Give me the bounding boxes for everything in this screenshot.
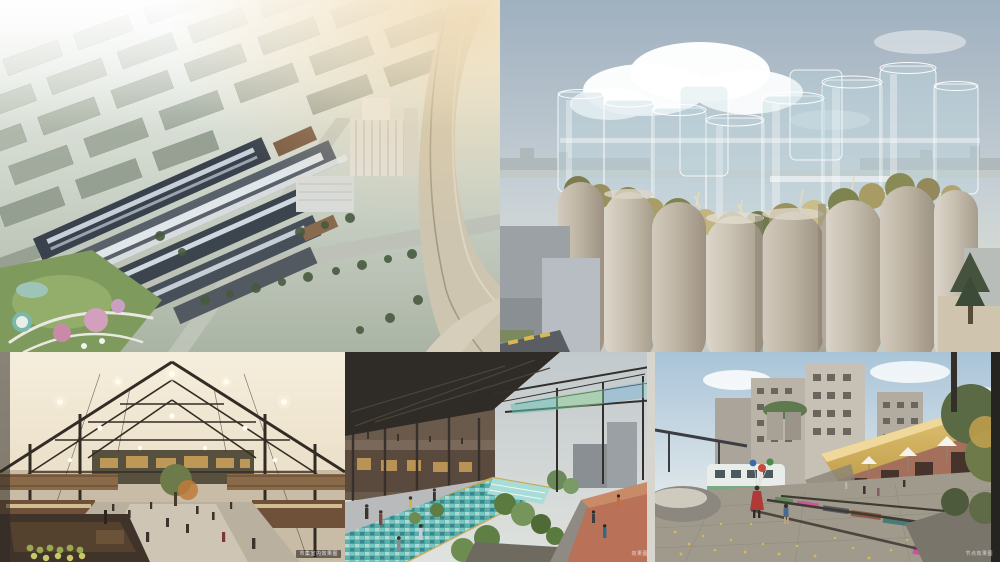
aerial-masterplan-scene [0, 0, 500, 352]
market-hall-scene [0, 352, 345, 562]
left-column-shadow [0, 352, 10, 562]
sun-glow [0, 0, 500, 352]
panel-water-channel-walkway: 效果图 [345, 352, 655, 562]
panel-silo-towers [500, 0, 1000, 352]
water-channel-scene [345, 352, 655, 562]
rendering-collage: 市集室内效果图 [0, 0, 1000, 562]
panel-aerial-masterplan [0, 0, 500, 352]
right-edge-wall [647, 352, 655, 562]
silo-towers-scene [500, 0, 1000, 352]
panel-market-hall-interior: 市集室内效果图 [0, 352, 345, 562]
railway-plaza-scene [655, 352, 1000, 562]
produce-stall-foreground [0, 510, 150, 562]
panel-railway-plaza: 节点效果图 [655, 352, 1000, 562]
